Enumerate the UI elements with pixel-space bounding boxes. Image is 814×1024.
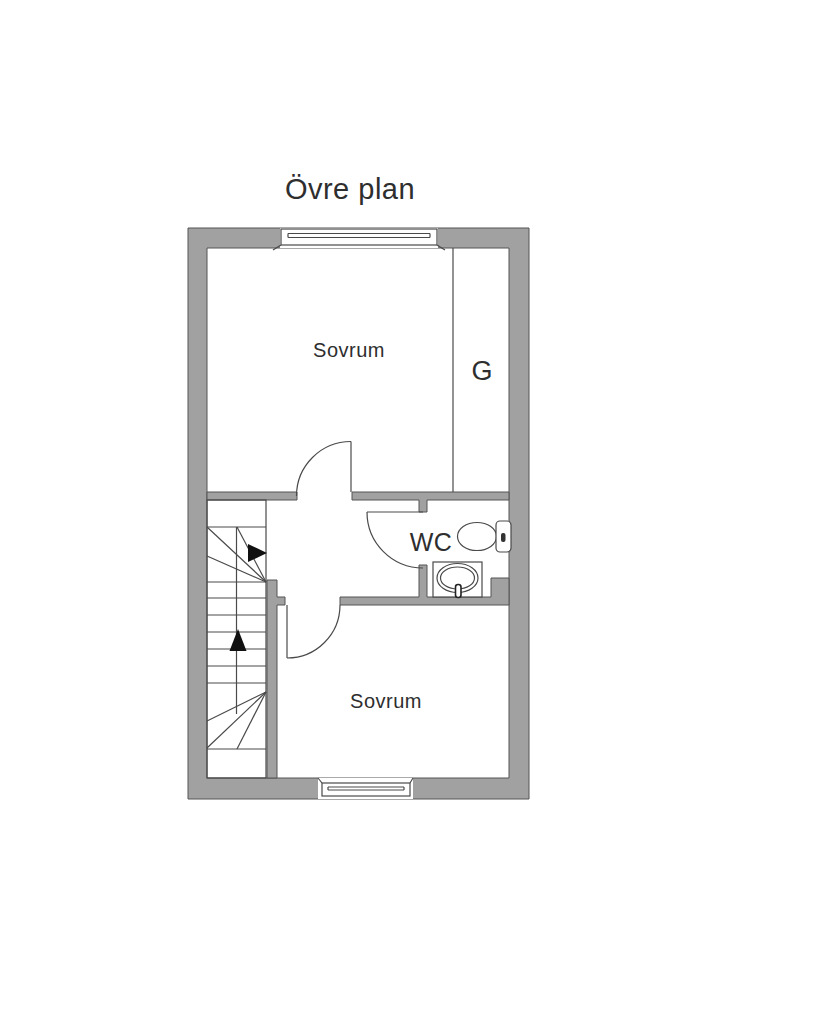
door-upper-bedroom-icon — [297, 442, 352, 497]
staircase-icon — [207, 500, 267, 778]
window-top-icon — [273, 228, 445, 250]
wall-wc-lower — [340, 565, 509, 605]
wall-mid-left — [207, 492, 297, 500]
room-label-wc: WC — [410, 528, 453, 556]
window-bottom-icon — [318, 778, 413, 799]
sink-icon — [433, 562, 482, 598]
stair-arrow-right-icon — [248, 544, 267, 562]
outer-wall — [188, 228, 529, 799]
plan-title: Övre plan — [285, 173, 415, 205]
room-label-sovrum-upper: Sovrum — [313, 339, 385, 361]
walls — [188, 228, 529, 799]
wall-mid-right — [352, 492, 509, 512]
room-label-garderob: G — [471, 356, 492, 386]
wall-stair — [267, 580, 285, 778]
toilet-icon — [458, 521, 512, 552]
room-label-sovrum-lower: Sovrum — [350, 690, 422, 712]
floor-plan-page: Övre plan — [0, 0, 814, 1024]
door-lower-bedroom-icon — [287, 605, 340, 658]
floor-plan-svg: Övre plan — [0, 0, 814, 1024]
